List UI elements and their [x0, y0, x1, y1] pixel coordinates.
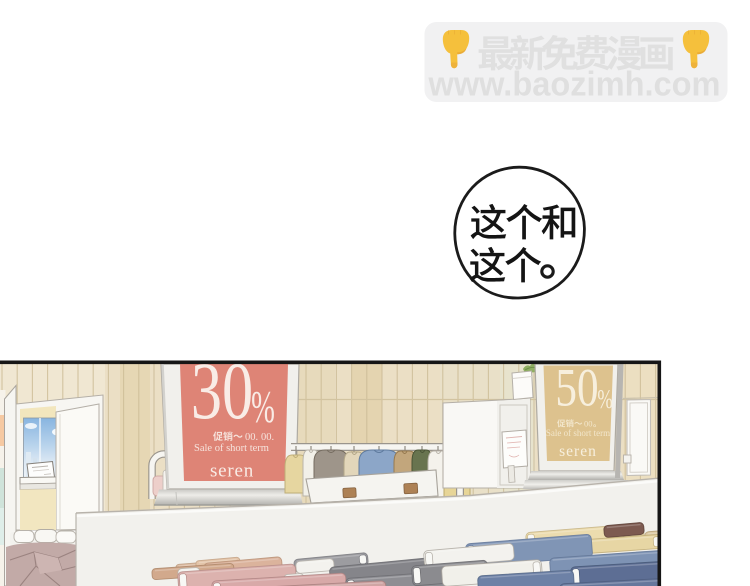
svg-text:%: %: [597, 383, 612, 413]
svg-text:00.: 00.: [261, 432, 274, 443]
svg-text:00: 00: [584, 419, 593, 429]
svg-text:www.baozimh.com: www.baozimh.com: [428, 66, 721, 104]
svg-text:00.: 00.: [245, 432, 258, 443]
svg-text:%: %: [251, 382, 275, 432]
svg-text:50: 50: [555, 357, 598, 418]
svg-text:seren: seren: [210, 461, 254, 482]
svg-text:Sale of short term: Sale of short term: [546, 428, 610, 438]
svg-text:Sale of short term: Sale of short term: [194, 443, 269, 454]
svg-text:seren: seren: [559, 443, 597, 460]
